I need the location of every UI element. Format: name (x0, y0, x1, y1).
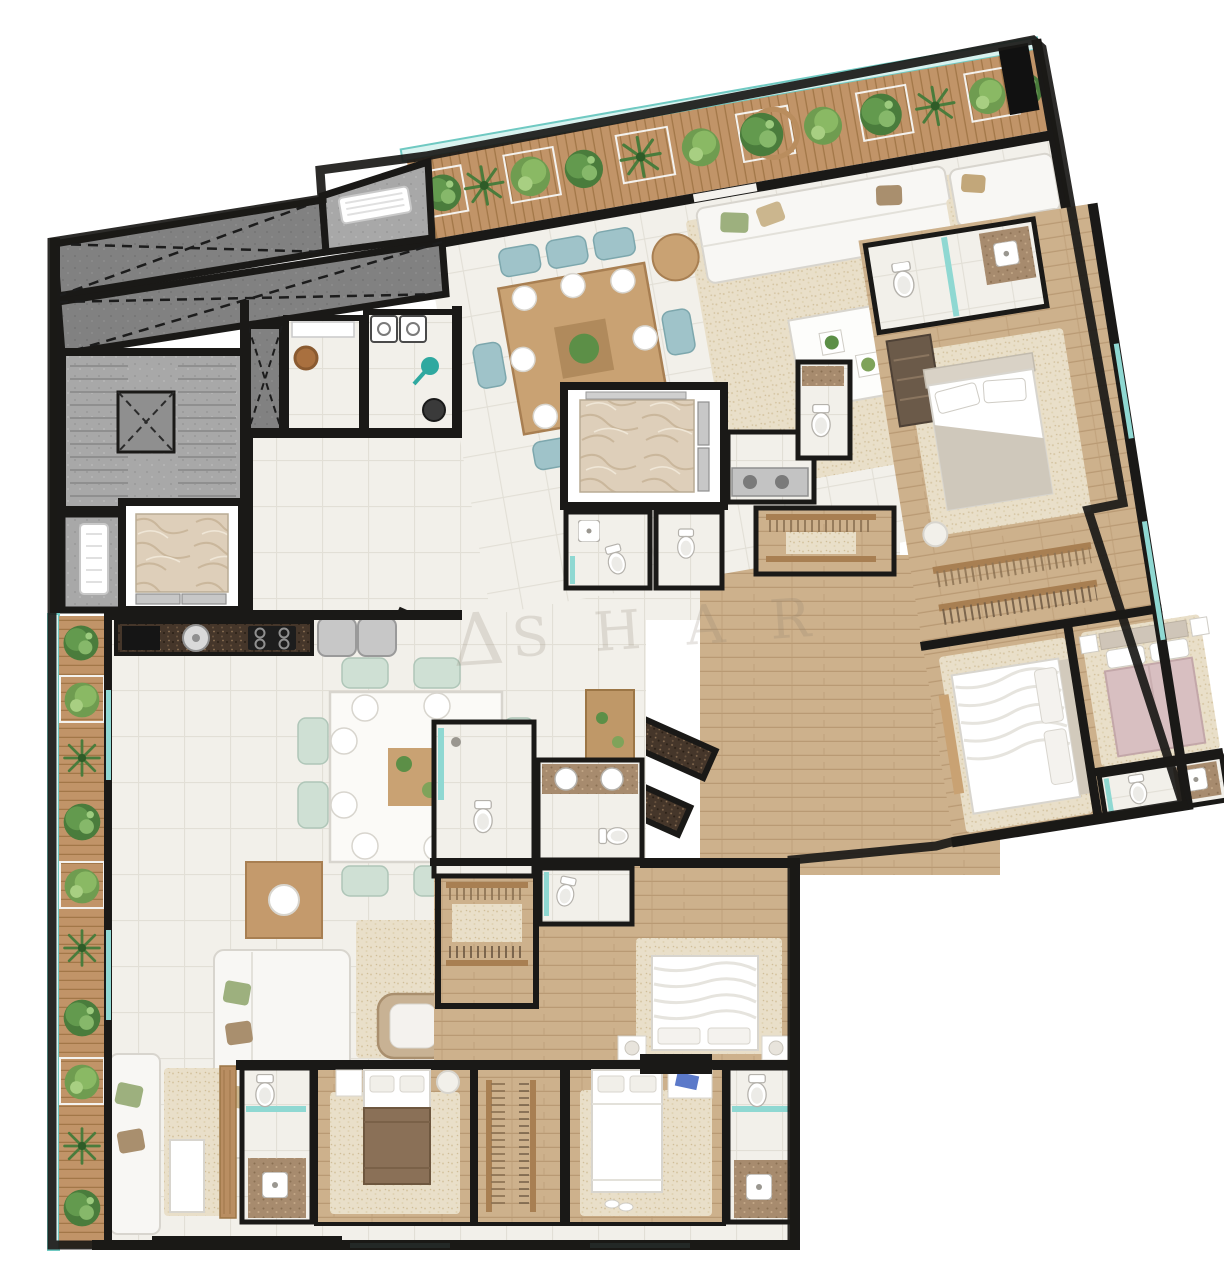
utility-room-b (366, 312, 458, 432)
pillow-green (720, 212, 749, 233)
lower-unit (48, 610, 800, 1250)
lower-walkin-closet (438, 868, 536, 1006)
upper-walkin-closet (756, 508, 894, 574)
master-bed (952, 657, 1090, 814)
bedroom-pink (1079, 613, 1224, 768)
watermark-symbol: Δ (449, 596, 507, 683)
closet-corridor (476, 1068, 564, 1224)
elevator-door (698, 402, 709, 445)
bed-white (592, 1070, 662, 1192)
lower-master-suite (434, 866, 794, 1064)
cooktop (248, 626, 296, 650)
bathroom-b (728, 1068, 794, 1222)
upper-wc-3 (798, 362, 850, 458)
bathroom-a (242, 1068, 312, 1222)
bedroom-1 (316, 1068, 472, 1224)
washing-machine (371, 316, 397, 342)
fridge-column (318, 618, 356, 656)
stair-hall (62, 352, 244, 510)
corner-lounge (110, 1054, 236, 1234)
floor-plan-page: Δ S H A R (0, 0, 1224, 1280)
vent-hood (122, 626, 160, 650)
bucket (423, 399, 445, 421)
shower-room (434, 722, 534, 876)
basket (295, 347, 317, 369)
chaise-table (170, 1140, 204, 1212)
pouf (437, 1071, 459, 1093)
elevator-cab-marble (580, 400, 694, 492)
upper-wc-1 (566, 512, 650, 588)
floor-plan-drawing: Δ S H A R (0, 0, 1224, 1280)
bed-1 (923, 353, 1054, 510)
lower-elevator (118, 498, 246, 614)
elevator-door (136, 594, 180, 604)
upper-elevator (560, 382, 728, 510)
lower-kitchen (116, 618, 396, 656)
bottom-bedrooms (236, 1060, 796, 1224)
bed-brown (364, 1070, 430, 1184)
utility-room-a (286, 318, 362, 432)
pillow-brown (876, 185, 903, 206)
elevator-cab-marble (136, 514, 228, 592)
bedroom-2 (568, 1068, 724, 1224)
wood-screen (220, 1066, 236, 1218)
lower-suite-wc (540, 868, 632, 924)
nightstand (336, 1070, 362, 1096)
upper-wc-2 (656, 512, 722, 588)
